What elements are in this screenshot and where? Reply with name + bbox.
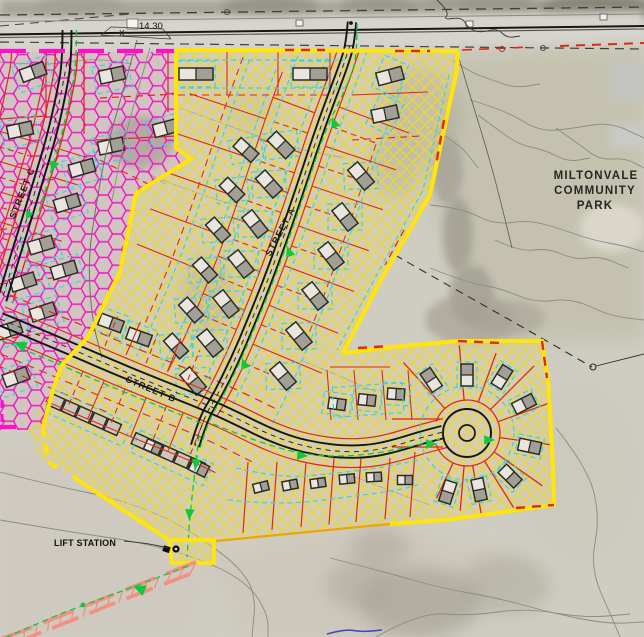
svg-text:COMMUNITY: COMMUNITY: [554, 185, 636, 197]
svg-text:LIFT STATION: LIFT STATION: [54, 538, 116, 548]
svg-text:X: X: [119, 28, 125, 38]
svg-text:MILTONVALE: MILTONVALE: [554, 170, 639, 182]
svg-text:14.30: 14.30: [139, 21, 163, 32]
svg-text:PARK: PARK: [577, 200, 614, 212]
